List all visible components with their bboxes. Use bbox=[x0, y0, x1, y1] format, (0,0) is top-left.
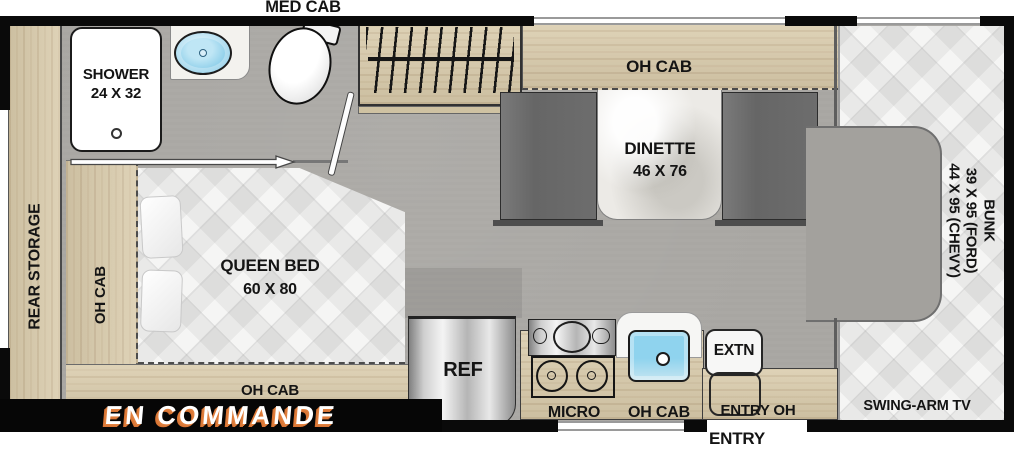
oh-cab-bed-foot-label: OH CAB bbox=[220, 383, 320, 399]
pocket-door-arrow bbox=[70, 155, 296, 169]
med-cab-label: MED CAB bbox=[256, 0, 350, 17]
rear-storage-label: REAR STORAGE bbox=[26, 147, 43, 387]
wall-bottom bbox=[442, 420, 558, 432]
window-bottom-kitchen bbox=[558, 421, 684, 431]
hood-knob bbox=[592, 328, 610, 344]
slideout-shadow bbox=[396, 268, 522, 318]
rv-floor-plan: MED CAB SHOWER 24 X 32 REAR STORAGE OH C… bbox=[0, 0, 1024, 449]
wardrobe-ledge bbox=[358, 106, 522, 114]
extn-label: EXTN bbox=[705, 343, 763, 360]
pillow bbox=[140, 269, 183, 332]
window-top-dinette bbox=[534, 17, 785, 25]
faucet bbox=[656, 352, 670, 366]
dinette-bench-right bbox=[722, 92, 818, 220]
bunk-size-chevy: 44 X 95 (CHEVY) bbox=[944, 121, 962, 321]
dinette-size-label: 46 X 76 bbox=[598, 163, 722, 180]
pillow bbox=[139, 195, 183, 259]
micro-label: MICRO bbox=[538, 404, 610, 421]
wall-right bbox=[1004, 16, 1014, 432]
wardrobe-rod bbox=[368, 57, 514, 61]
cabinet-end-line bbox=[834, 26, 837, 126]
wall-bottom bbox=[807, 420, 1014, 432]
ref-label: REF bbox=[433, 360, 493, 382]
burner-center bbox=[547, 371, 556, 380]
partition-line bbox=[293, 160, 348, 163]
shower-size-label: 24 X 32 bbox=[72, 86, 160, 102]
wall-top bbox=[0, 16, 534, 26]
bunk-name: BUNK bbox=[980, 121, 998, 321]
hood-fan-circle bbox=[553, 321, 591, 353]
swing-arm-tv-label: SWING-ARM TV bbox=[840, 399, 994, 415]
hood-knob bbox=[533, 328, 547, 344]
queen-bed-size-label: 60 X 80 bbox=[195, 281, 345, 298]
shower-label: SHOWER bbox=[72, 67, 160, 83]
entry-oh-label: ENTRY OH bbox=[704, 403, 812, 419]
wall-top bbox=[785, 16, 857, 26]
bed-foot-dash-line bbox=[138, 362, 405, 364]
queen-bed-label: QUEEN BED bbox=[195, 257, 345, 275]
dinette-bench-left bbox=[500, 92, 597, 220]
oh-cab-dinette-label: OH CAB bbox=[609, 58, 709, 76]
entry-label: ENTRY bbox=[677, 430, 797, 448]
bunk-label: BUNK 39 X 95 (FORD) 44 X 95 (CHEVY) bbox=[944, 121, 997, 321]
status-banner-text: EN COMMANDE bbox=[103, 400, 338, 431]
window-top-bunk bbox=[857, 17, 980, 25]
oh-cab-kitchen-label: OH CAB bbox=[621, 404, 697, 421]
status-banner: EN COMMANDE bbox=[0, 399, 442, 432]
sink-drain bbox=[199, 49, 207, 57]
oh-cab-bed-side-label: OH CAB bbox=[93, 240, 109, 350]
bench-base bbox=[493, 220, 603, 226]
bunk-size-ford: 39 X 95 (FORD) bbox=[962, 121, 980, 321]
wall-left bbox=[0, 16, 10, 110]
dinette-label: DINETTE bbox=[598, 140, 722, 158]
burner-center bbox=[587, 371, 596, 380]
cab-floor-notch bbox=[806, 126, 942, 322]
shower-drain bbox=[111, 128, 122, 139]
